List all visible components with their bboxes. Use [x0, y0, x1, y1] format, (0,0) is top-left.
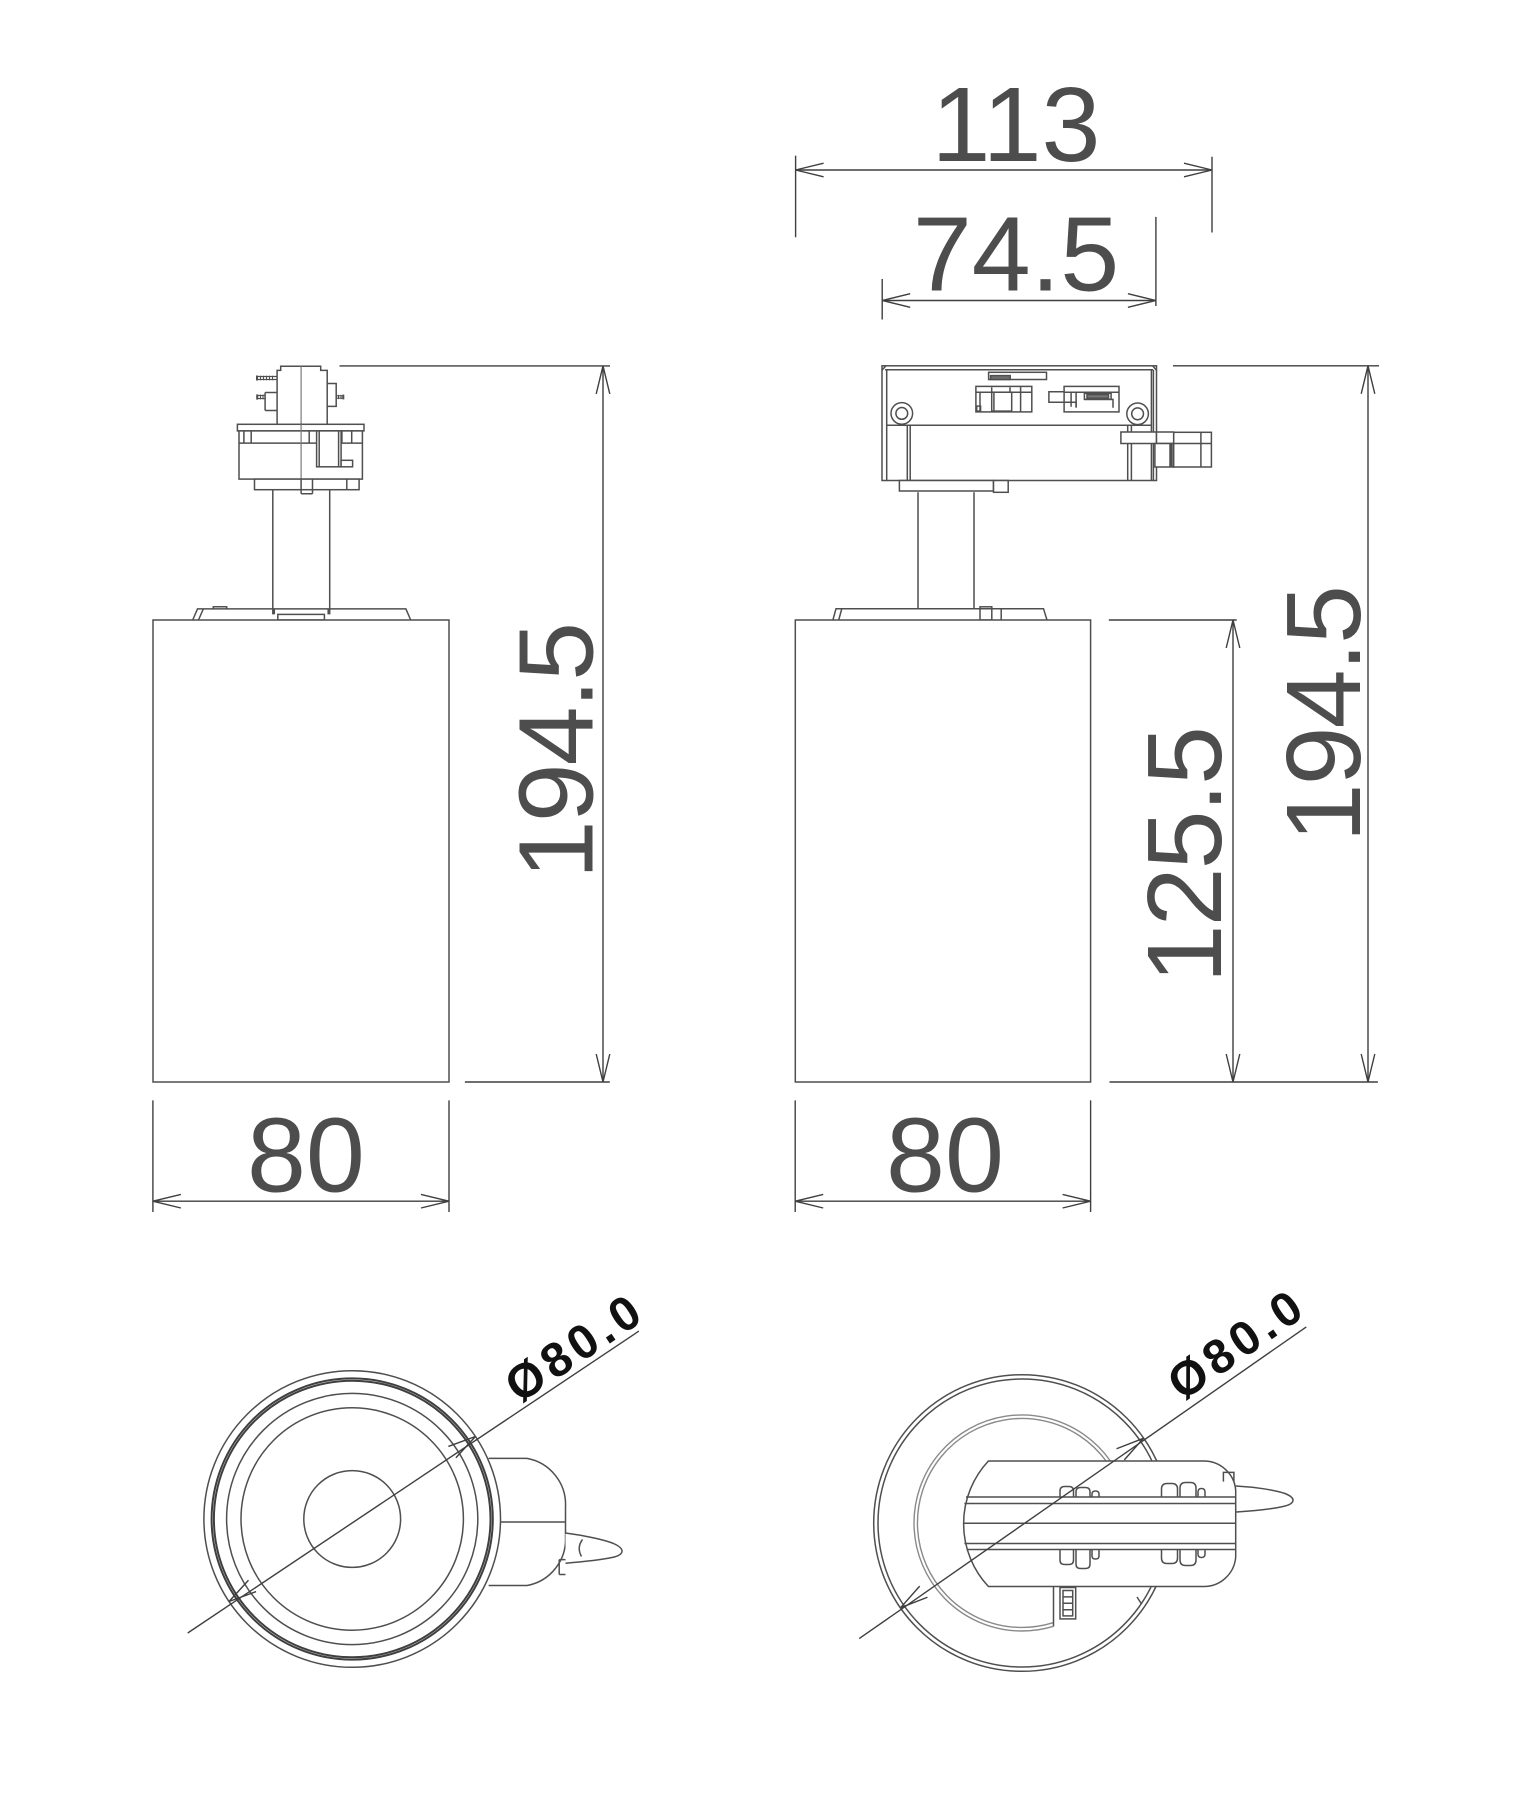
- svg-text:125.5: 125.5: [1126, 728, 1244, 983]
- svg-text:Ø80.0: Ø80.0: [496, 1282, 655, 1413]
- svg-text:74.5: 74.5: [913, 196, 1119, 314]
- svg-text:Ø80.0: Ø80.0: [1158, 1278, 1316, 1411]
- svg-text:194.5: 194.5: [498, 624, 616, 879]
- svg-text:80: 80: [247, 1097, 365, 1215]
- svg-text:113: 113: [932, 66, 1101, 184]
- svg-text:194.5: 194.5: [1265, 587, 1383, 842]
- svg-text:80: 80: [886, 1097, 1004, 1215]
